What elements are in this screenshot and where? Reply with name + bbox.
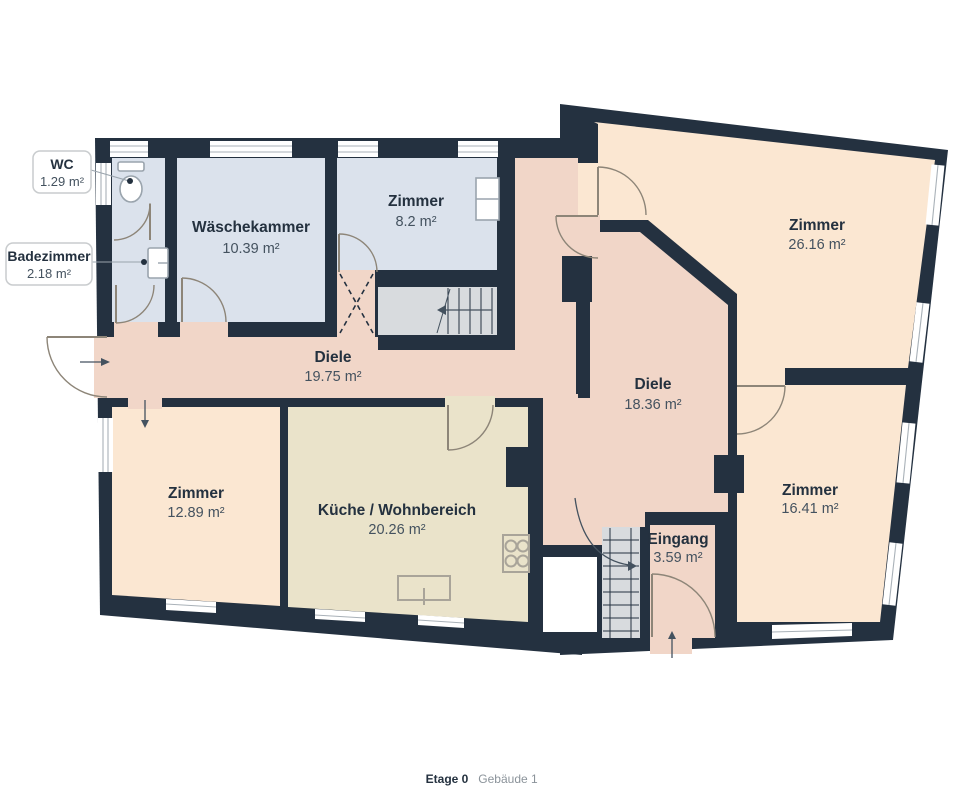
label-diele-links-area: 19.75 m²: [304, 369, 361, 385]
footer: Etage 0 Gebäude 1: [426, 772, 538, 786]
opening-zimmer-rechts: [737, 368, 785, 386]
wall-arm-diele: [576, 300, 590, 394]
footer-building-label: Gebäude 1: [478, 772, 538, 786]
chimney-kueche: [506, 447, 532, 487]
opening-kueche: [445, 396, 495, 409]
room-waeschekammer: [177, 158, 325, 322]
radiator-icon: [476, 178, 499, 220]
opening-waeschekammer: [180, 322, 228, 338]
pillar-corridor: [562, 256, 592, 302]
void-space: [543, 557, 597, 632]
callout-wc-dot: [127, 178, 133, 184]
label-zimmer-links-name: Zimmer: [168, 485, 224, 502]
label-kueche-area: 20.26 m²: [368, 522, 425, 538]
sink-icon: [148, 248, 168, 278]
footer-floor-label: Etage 0: [426, 772, 469, 786]
stairs-up-floor: [378, 287, 497, 335]
label-zimmer-gross-area: 26.16 m²: [788, 237, 845, 253]
passage-dashed-strip: [337, 270, 375, 337]
label-zimmer-klein-name: Zimmer: [388, 193, 444, 210]
label-zimmer-rechts-area: 16.41 m²: [781, 501, 838, 517]
floor-plan: Wäschekammer 10.39 m² Zimmer 8.2 m² Zimm…: [0, 0, 960, 794]
pillar-zimmer-rechts: [714, 455, 744, 493]
label-eingang-name: Eingang: [647, 531, 708, 548]
opening-left-entry: [94, 337, 114, 398]
label-kueche-name: Küche / Wohnbereich: [318, 502, 476, 519]
opening-diele-rechts: [578, 215, 600, 256]
label-waeschekammer-name: Wäschekammer: [192, 219, 310, 236]
opening-zimmer-gross: [578, 163, 600, 217]
label-waeschekammer-area: 10.39 m²: [222, 241, 279, 257]
label-diele-rechts-name: Diele: [634, 376, 671, 393]
label-zimmer-rechts-name: Zimmer: [782, 482, 838, 499]
label-diele-rechts-area: 18.36 m²: [624, 397, 681, 413]
callout-badezimmer-name: Badezimmer: [7, 248, 91, 264]
label-zimmer-klein-area: 8.2 m²: [395, 214, 436, 230]
callout-wc-name: WC: [50, 156, 73, 172]
label-zimmer-gross-name: Zimmer: [789, 217, 845, 234]
label-eingang-area: 3.59 m²: [653, 550, 702, 566]
stairs-down-floor: [602, 527, 640, 638]
label-zimmer-links-area: 12.89 m²: [167, 505, 224, 521]
opening-corridor-diele: [114, 322, 158, 338]
callout-badezimmer-dot: [141, 259, 147, 265]
label-diele-links-name: Diele: [314, 349, 351, 366]
callout-badezimmer-area: 2.18 m²: [27, 266, 72, 281]
callout-wc-area: 1.29 m²: [40, 174, 85, 189]
